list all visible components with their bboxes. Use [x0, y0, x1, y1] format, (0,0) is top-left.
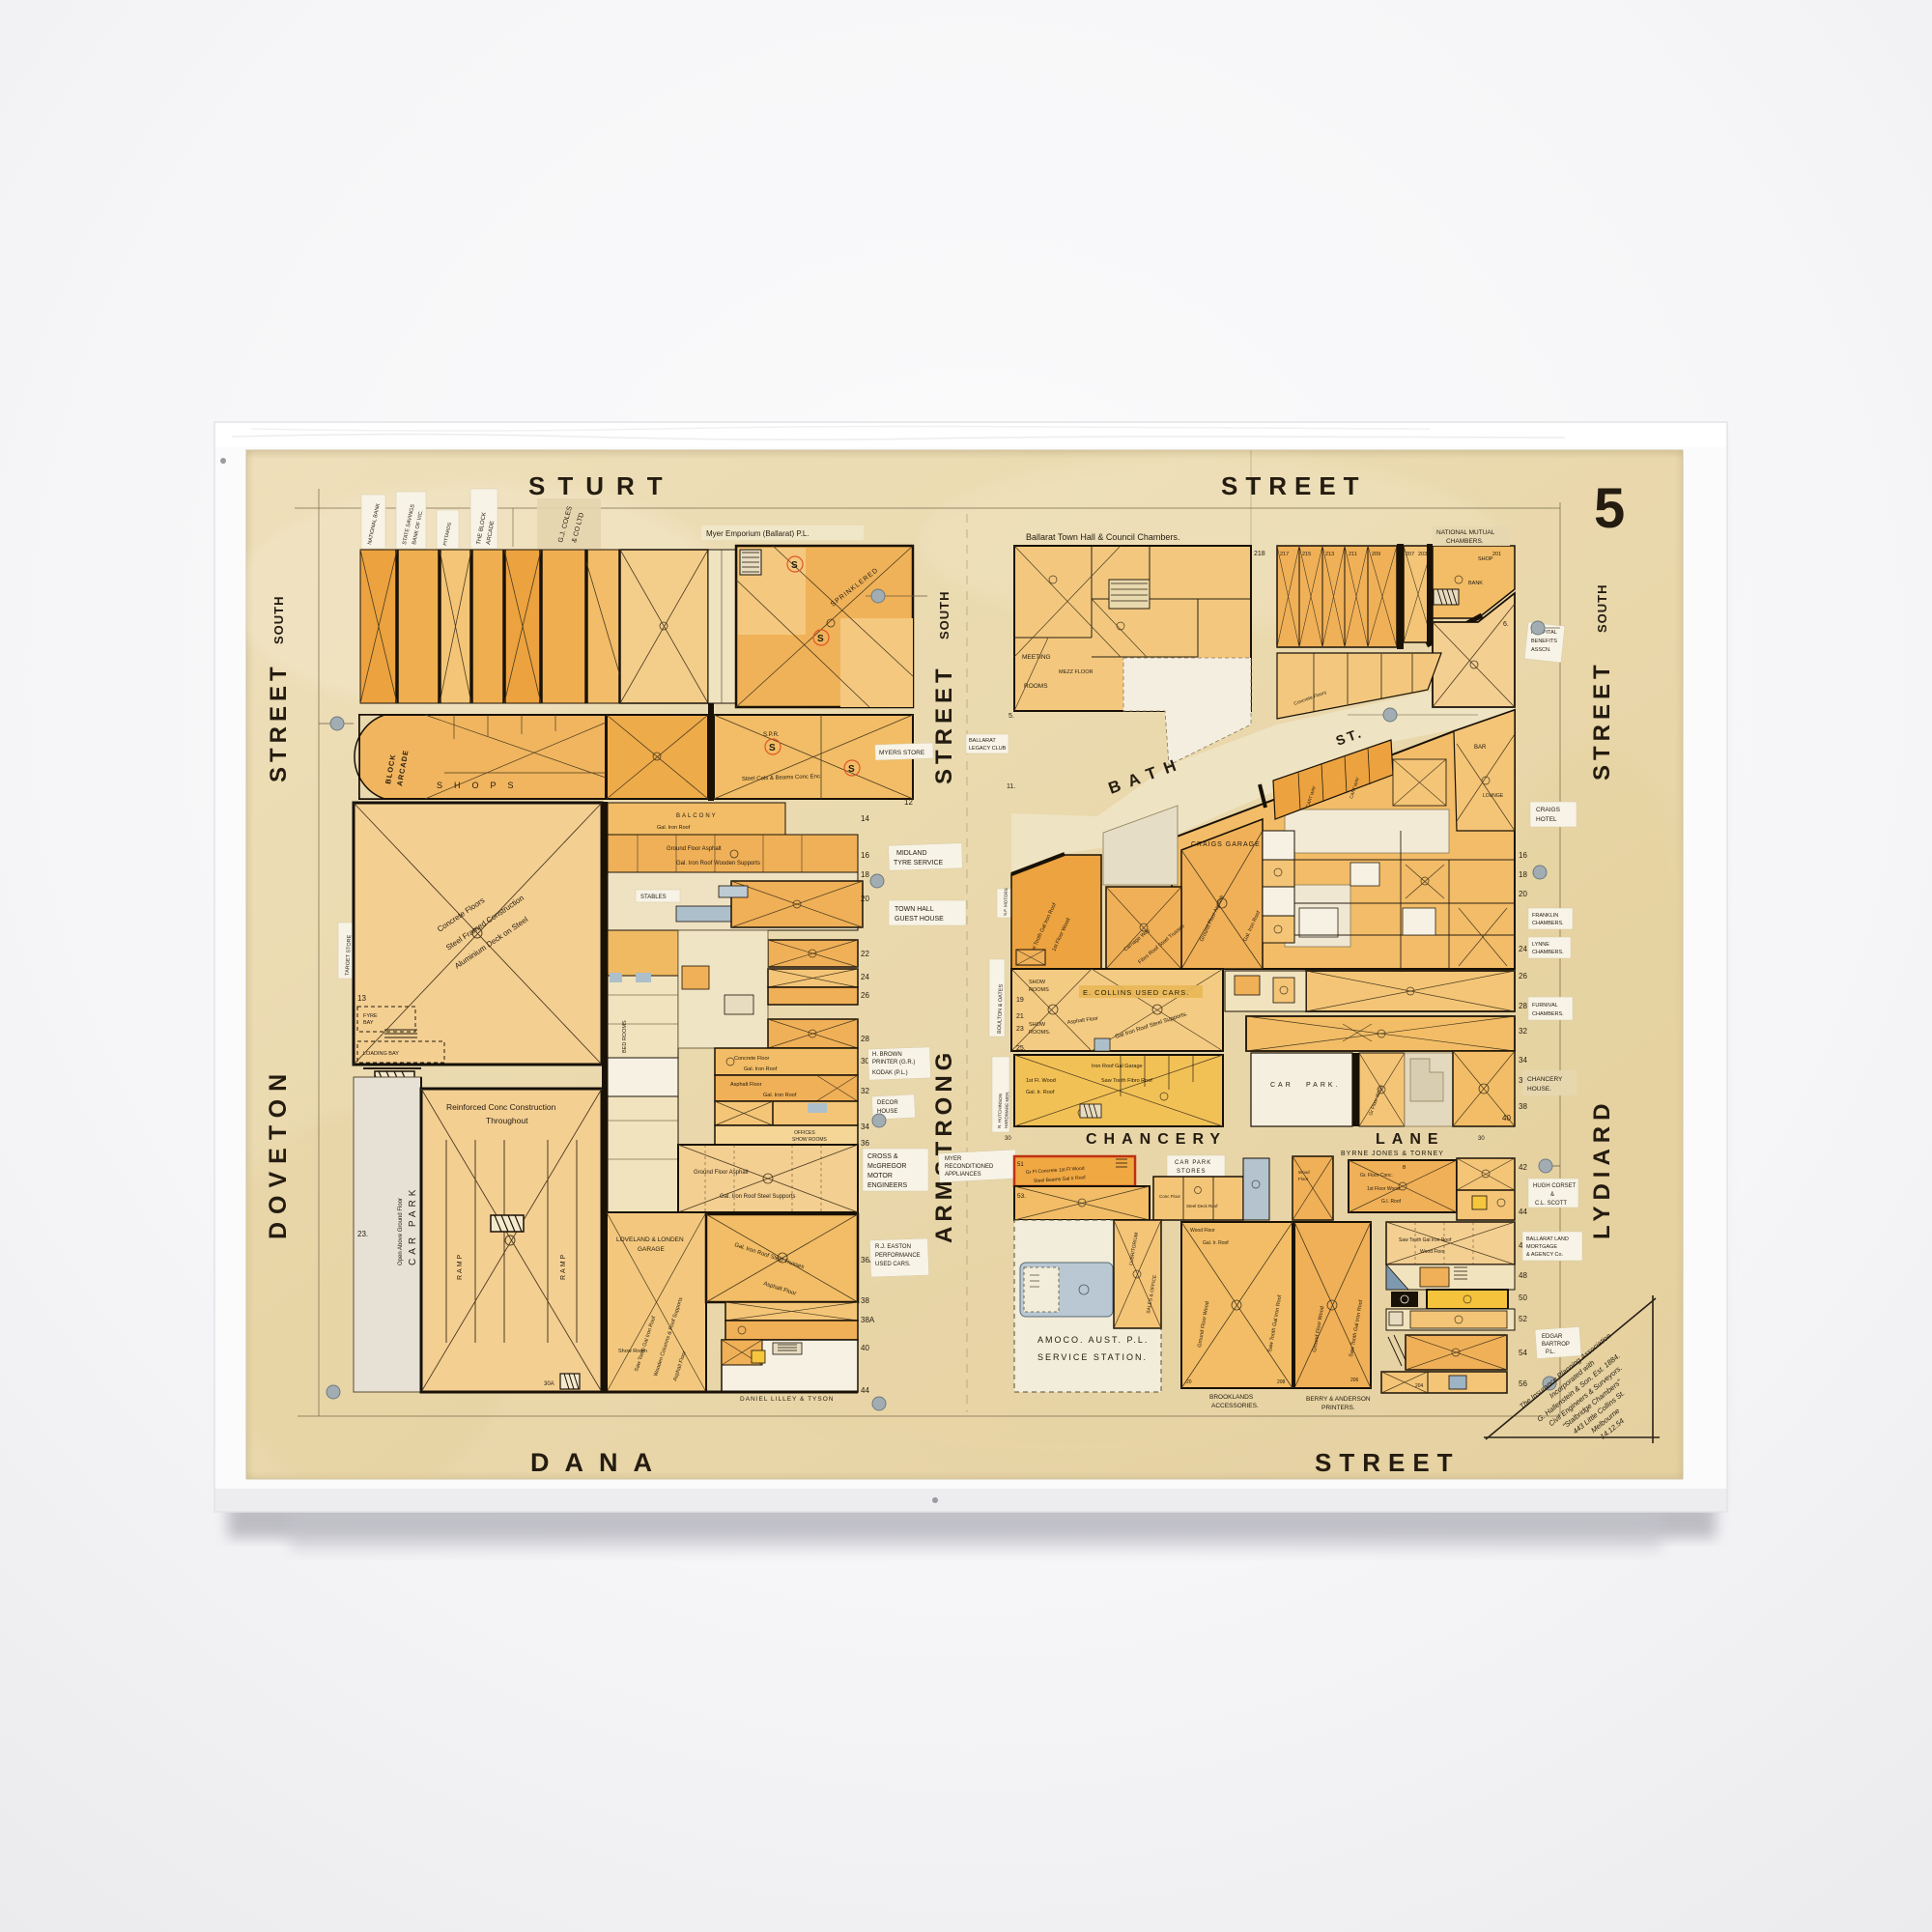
svg-text:CHAMBERS.: CHAMBERS.: [1532, 921, 1564, 926]
svg-text:PRINTER (G.R.): PRINTER (G.R.): [872, 1060, 915, 1065]
svg-text:11.: 11.: [1007, 783, 1015, 790]
svg-text:LANE: LANE: [1376, 1131, 1445, 1148]
svg-text:40: 40: [1502, 1114, 1511, 1122]
svg-text:S.P.R.: S.P.R.: [763, 732, 780, 738]
svg-text:SOUTH: SOUTH: [271, 596, 286, 645]
svg-text:S: S: [848, 764, 855, 775]
svg-text:44: 44: [861, 1386, 869, 1395]
svg-text:STREET: STREET: [1315, 1448, 1461, 1477]
svg-text:FYRE: FYRE: [363, 1013, 378, 1019]
svg-text:RECONDITIONED: RECONDITIONED: [945, 1164, 994, 1170]
svg-text:203: 203: [1418, 552, 1427, 557]
svg-text:BROOKLANDS: BROOKLANDS: [1209, 1394, 1254, 1401]
svg-text:1st Fl. Wood: 1st Fl. Wood: [1026, 1078, 1056, 1084]
svg-text:206: 206: [1350, 1378, 1359, 1383]
svg-text:CROSS &: CROSS &: [867, 1153, 898, 1160]
svg-text:NATIONAL MUTUAL: NATIONAL MUTUAL: [1436, 529, 1495, 536]
svg-text:BARTROP: BARTROP: [1542, 1342, 1570, 1348]
svg-text:26: 26: [861, 991, 869, 1000]
svg-text:CRAIGS: CRAIGS: [1536, 807, 1561, 813]
svg-text:23: 23: [1016, 1026, 1024, 1033]
svg-text:215: 215: [1302, 552, 1311, 557]
svg-text:G.I. Roof: G.I. Roof: [1381, 1199, 1402, 1205]
svg-text:30A: 30A: [544, 1381, 554, 1387]
svg-text:LOUNGE: LOUNGE: [1483, 793, 1504, 799]
svg-text:CHANCERY: CHANCERY: [1086, 1131, 1227, 1148]
svg-text:E. COLLINS USED CARS.: E. COLLINS USED CARS.: [1083, 988, 1189, 997]
svg-text:Wood: Wood: [1298, 1170, 1310, 1175]
svg-text:Wood Floor: Wood Floor: [1190, 1228, 1215, 1234]
svg-text:5.: 5.: [1009, 713, 1014, 720]
svg-text:ACCESSORIES.: ACCESSORIES.: [1211, 1403, 1259, 1409]
svg-text:28: 28: [861, 1035, 869, 1043]
svg-text:Gal. Ir. Roof: Gal. Ir. Roof: [1026, 1090, 1055, 1095]
svg-text:ASSCN.: ASSCN.: [1531, 647, 1551, 653]
svg-text:20: 20: [861, 895, 869, 903]
svg-text:SHOW ROOMS: SHOW ROOMS: [792, 1137, 827, 1143]
svg-text:MYER: MYER: [945, 1156, 962, 1162]
svg-text:CHAMBERS.: CHAMBERS.: [1446, 538, 1484, 545]
svg-text:13: 13: [357, 994, 366, 1003]
svg-text:208: 208: [1277, 1379, 1286, 1385]
svg-text:21: 21: [1016, 1013, 1024, 1020]
svg-text:P.L.: P.L.: [1546, 1350, 1555, 1355]
svg-text:211: 211: [1349, 552, 1357, 557]
svg-text:FURNIVAL: FURNIVAL: [1532, 1003, 1558, 1009]
svg-text:Myer Emporium (Ballarat) P.L.: Myer Emporium (Ballarat) P.L.: [706, 529, 810, 538]
svg-text:STREET: STREET: [1589, 660, 1615, 781]
svg-text:Ballarat Town Hall & Council C: Ballarat Town Hall & Council Chambers.: [1026, 532, 1179, 542]
svg-text:Saw Tooth Gal Iron Roof: Saw Tooth Gal Iron Roof: [1399, 1237, 1452, 1243]
svg-text:USED CARS.: USED CARS.: [875, 1262, 911, 1267]
svg-text:SHOW: SHOW: [1029, 1022, 1046, 1028]
svg-text:Ground Floor Asphalt: Ground Floor Asphalt: [667, 846, 722, 852]
svg-text:HOUSE.: HOUSE.: [1527, 1086, 1551, 1093]
svg-text:SHOP: SHOP: [1478, 556, 1493, 562]
svg-text:52: 52: [1519, 1315, 1527, 1323]
svg-text:MIDLAND: MIDLAND: [896, 850, 927, 857]
svg-text:51: 51: [1017, 1162, 1024, 1168]
svg-text:54: 54: [1519, 1349, 1527, 1357]
svg-text:Reinforced Conc Construction: Reinforced Conc Construction: [446, 1102, 556, 1112]
svg-text:ROOMS.: ROOMS.: [1029, 1030, 1051, 1036]
svg-text:19: 19: [1016, 997, 1024, 1004]
svg-text:SHOPS: SHOPS: [437, 781, 526, 790]
svg-text:36: 36: [861, 1139, 869, 1148]
svg-text:42: 42: [1519, 1163, 1527, 1172]
svg-text:DANIEL LILLEY & TYSON: DANIEL LILLEY & TYSON: [740, 1396, 834, 1403]
svg-text:204: 204: [1415, 1383, 1424, 1389]
svg-text:LOVELAND & LONDEN: LOVELAND & LONDEN: [616, 1236, 684, 1243]
svg-text:ARMSTRONG: ARMSTRONG: [931, 1048, 957, 1243]
svg-text:Conc Floor: Conc Floor: [1159, 1194, 1181, 1199]
svg-text:BANK: BANK: [1468, 581, 1483, 586]
svg-text:Concrete Floor: Concrete Floor: [734, 1056, 770, 1062]
svg-text:LYDIARD: LYDIARD: [1589, 1098, 1615, 1239]
svg-text:22: 22: [861, 950, 869, 958]
svg-text:OFFICES: OFFICES: [794, 1130, 815, 1136]
svg-text:PERFORMANCE: PERFORMANCE: [875, 1253, 921, 1259]
svg-text:Throughout: Throughout: [486, 1116, 528, 1125]
svg-text:34: 34: [861, 1122, 869, 1131]
svg-text:SOUTH: SOUTH: [1595, 584, 1609, 634]
svg-text:Ground Floor Asphalt: Ground Floor Asphalt: [694, 1170, 749, 1176]
svg-text:30: 30: [1005, 1136, 1011, 1142]
svg-text:GUEST HOUSE: GUEST HOUSE: [895, 916, 944, 923]
svg-text:50: 50: [1519, 1293, 1527, 1302]
svg-text:20: 20: [1519, 890, 1527, 898]
svg-text:EDGAR: EDGAR: [1542, 1334, 1563, 1340]
svg-text:Floor: Floor: [1298, 1177, 1309, 1181]
svg-text:CHAMBERS.: CHAMBERS.: [1532, 950, 1564, 955]
svg-text:STREET: STREET: [931, 664, 957, 784]
svg-text:FRANKLIN: FRANKLIN: [1532, 913, 1558, 919]
svg-text:STABLES: STABLES: [640, 895, 667, 900]
svg-text:MEZZ FLOOR: MEZZ FLOOR: [1059, 669, 1093, 675]
svg-text:GARAGE: GARAGE: [638, 1246, 665, 1253]
svg-text:STREET: STREET: [266, 662, 292, 782]
svg-text:SHOW: SHOW: [1029, 980, 1046, 985]
svg-text:1st Floor Wood: 1st Floor Wood: [1367, 1186, 1400, 1192]
svg-text:6.: 6.: [1503, 621, 1509, 628]
svg-text:Iron Roof Gal Garage: Iron Roof Gal Garage: [1092, 1064, 1143, 1069]
svg-text:DECOR: DECOR: [877, 1100, 898, 1106]
svg-text:26: 26: [1519, 972, 1527, 980]
svg-text:LYNNE: LYNNE: [1532, 942, 1549, 948]
svg-text:213: 213: [1325, 552, 1334, 557]
svg-text:24: 24: [1519, 945, 1527, 953]
svg-text:MOTOR: MOTOR: [867, 1173, 893, 1179]
svg-text:Gal. Iron Roof Steel Supports: Gal. Iron Roof Steel Supports: [720, 1194, 795, 1200]
svg-text:BALLARAT LAND: BALLARAT LAND: [1526, 1236, 1569, 1242]
svg-text:32: 32: [861, 1087, 869, 1095]
svg-text:Gal. Iron Roof Wooden Supports: Gal. Iron Roof Wooden Supports: [676, 861, 760, 867]
svg-text:ROOMS: ROOMS: [1029, 987, 1049, 993]
svg-text:38: 38: [1519, 1102, 1527, 1111]
svg-text:SOUTH: SOUTH: [937, 591, 952, 640]
svg-text:&: &: [1550, 1192, 1554, 1198]
svg-text:CHAMBERS.: CHAMBERS.: [1532, 1011, 1564, 1017]
svg-text:BAR: BAR: [1474, 745, 1487, 751]
svg-text:25.: 25.: [1016, 1045, 1026, 1052]
svg-text:MORTGAGE: MORTGAGE: [1526, 1244, 1557, 1250]
svg-text:STORES: STORES: [1177, 1169, 1207, 1175]
svg-text:218: 218: [1254, 551, 1265, 557]
svg-text:BAY: BAY: [363, 1020, 374, 1026]
svg-text:14: 14: [861, 814, 869, 823]
svg-text:LOADING BAY: LOADING BAY: [363, 1051, 399, 1057]
svg-text:207: 207: [1406, 552, 1414, 557]
svg-text:201: 201: [1492, 552, 1501, 557]
svg-text:40: 40: [861, 1344, 869, 1352]
svg-text:16: 16: [861, 851, 869, 860]
svg-text:ENGINEERS: ENGINEERS: [867, 1182, 908, 1189]
svg-text:209: 209: [1372, 552, 1380, 557]
svg-text:BYRNE JONES & TORNEY: BYRNE JONES & TORNEY: [1341, 1151, 1444, 1157]
svg-text:STREET: STREET: [1221, 471, 1367, 500]
svg-text:LEGACY CLUB: LEGACY CLUB: [969, 746, 1007, 752]
svg-text:12: 12: [904, 798, 913, 807]
svg-text:217: 217: [1280, 552, 1289, 557]
svg-text:SERVICE STATION.: SERVICE STATION.: [1037, 1352, 1148, 1362]
svg-text:DOVETON: DOVETON: [265, 1066, 292, 1239]
svg-text:Gr. Floor Conc.: Gr. Floor Conc.: [1360, 1173, 1393, 1179]
svg-text:24: 24: [861, 973, 869, 981]
svg-text:RAMP: RAMP: [457, 1253, 464, 1280]
svg-text:38: 38: [861, 1296, 869, 1305]
svg-text:PRINTERS.: PRINTERS.: [1321, 1405, 1355, 1411]
svg-text:30: 30: [1478, 1136, 1485, 1142]
svg-text:Wood Floor: Wood Floor: [1420, 1249, 1445, 1255]
svg-text:S: S: [769, 743, 776, 753]
svg-text:CAR: CAR: [1270, 1082, 1293, 1089]
svg-text:ROOMS: ROOMS: [1024, 683, 1048, 690]
svg-text:BALLARAT: BALLARAT: [969, 738, 996, 744]
svg-text:McGREGOR: McGREGOR: [867, 1163, 906, 1170]
svg-text:PARK.: PARK.: [1306, 1082, 1341, 1089]
svg-text:53.: 53.: [1017, 1193, 1026, 1200]
svg-text:DANA: DANA: [530, 1448, 668, 1477]
svg-text:CAR PARK: CAR PARK: [1175, 1160, 1211, 1166]
svg-text:CRAIGS GARAGE: CRAIGS GARAGE: [1191, 841, 1261, 848]
svg-text:Asphalt Floor: Asphalt Floor: [730, 1082, 762, 1088]
svg-text:MEETING: MEETING: [1022, 654, 1051, 661]
svg-text:MYERS STORE: MYERS STORE: [879, 750, 925, 756]
svg-text:34: 34: [1519, 1056, 1527, 1065]
svg-text:S: S: [791, 560, 798, 571]
svg-text:BERRY & ANDERSON: BERRY & ANDERSON: [1306, 1396, 1371, 1403]
svg-text:CAR PARK: CAR PARK: [408, 1186, 418, 1265]
svg-text:Gal. Iron Roof: Gal. Iron Roof: [657, 825, 691, 831]
svg-text:TOWN HALL: TOWN HALL: [895, 906, 934, 913]
svg-text:56: 56: [1519, 1379, 1527, 1388]
svg-text:HOTEL: HOTEL: [1536, 816, 1557, 823]
svg-text:Gal. Ir. Roof: Gal. Ir. Roof: [1203, 1240, 1229, 1246]
svg-text:16: 16: [1519, 851, 1527, 860]
svg-text:Gal. Iron Roof: Gal. Iron Roof: [744, 1066, 778, 1072]
svg-text:RAMP: RAMP: [560, 1253, 567, 1280]
svg-text:20: 20: [1186, 1379, 1192, 1385]
svg-text:23.: 23.: [357, 1230, 368, 1238]
svg-text:BALCONY: BALCONY: [676, 813, 718, 819]
svg-text:TYRE SERVICE: TYRE SERVICE: [894, 860, 944, 867]
svg-text:BENEFITS: BENEFITS: [1531, 639, 1557, 644]
svg-text:& AGENCY Co.: & AGENCY Co.: [1526, 1252, 1564, 1258]
svg-text:CHANCERY: CHANCERY: [1527, 1076, 1563, 1083]
svg-text:32: 32: [1519, 1027, 1527, 1036]
svg-text:18: 18: [1519, 870, 1527, 879]
svg-text:Open Above Ground Floor: Open Above Ground Floor: [398, 1198, 404, 1265]
svg-text:Steel Deck Roof: Steel Deck Roof: [1186, 1204, 1218, 1208]
svg-text:S.F. MOTORS: S.F. MOTORS: [1003, 888, 1009, 916]
svg-text:48: 48: [1519, 1271, 1527, 1280]
svg-text:HUGH CORSET: HUGH CORSET: [1533, 1183, 1577, 1189]
svg-text:R.J. EASTON: R.J. EASTON: [875, 1244, 911, 1250]
svg-text:APPLIANCES: APPLIANCES: [945, 1172, 981, 1178]
svg-text:H. BROWN: H. BROWN: [872, 1052, 902, 1058]
svg-text:BED ROOMS: BED ROOMS: [622, 1020, 628, 1053]
svg-text:44: 44: [1519, 1207, 1527, 1216]
svg-text:S: S: [817, 634, 824, 644]
svg-text:STURT: STURT: [528, 471, 675, 500]
svg-text:Gal. Iron Roof: Gal. Iron Roof: [763, 1093, 797, 1098]
svg-text:28: 28: [1519, 1002, 1527, 1010]
svg-text:18: 18: [861, 870, 869, 879]
svg-text:KODAK (P.L.): KODAK (P.L.): [872, 1070, 908, 1076]
svg-text:C.L. SCOTT: C.L. SCOTT: [1535, 1201, 1567, 1207]
svg-text:5: 5: [1594, 477, 1625, 540]
svg-text:AMOCO. AUST. P.L.: AMOCO. AUST. P.L.: [1037, 1335, 1149, 1345]
svg-text:Show Room: Show Room: [618, 1349, 647, 1354]
svg-text:38A: 38A: [861, 1316, 875, 1324]
